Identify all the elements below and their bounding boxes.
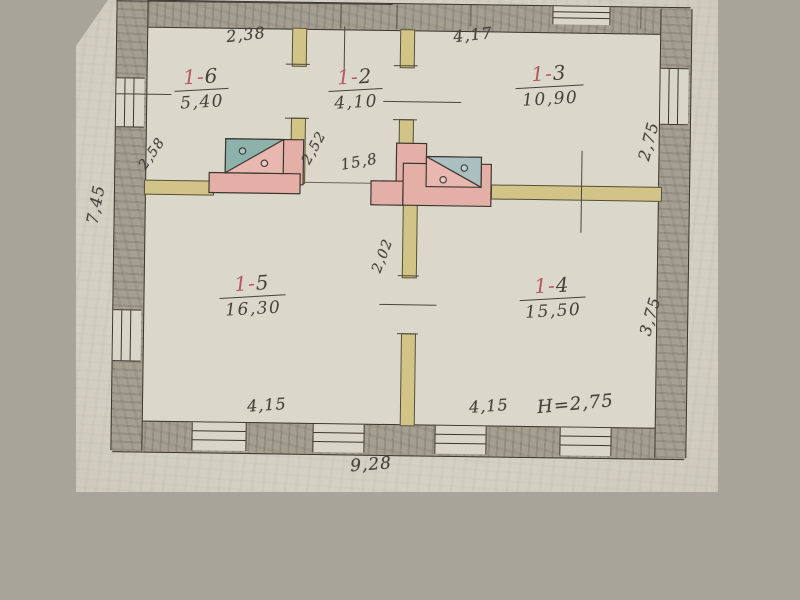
partition-central-upper: [402, 196, 418, 278]
dim-bottom-left: 4,15: [246, 394, 287, 416]
window-left-1: [116, 77, 145, 127]
window-bottom-3: [434, 426, 486, 455]
room-area: 4,10: [326, 91, 387, 114]
room-label-1-5: 1-5 16,30: [213, 269, 292, 321]
partition-central-lower: [400, 333, 416, 426]
room-area: 10,90: [512, 87, 589, 111]
window-bottom-4: [559, 427, 611, 456]
scanned-floor-plan: 1-6 5,40 1-2 4,10 1-3 10,90 1-5 16,30 1-…: [0, 0, 800, 600]
outer-wall-left: [110, 0, 148, 451]
partition-1-2-upper: [400, 29, 416, 68]
room-area: 5,40: [172, 91, 233, 114]
room-number: 1-2: [324, 63, 385, 90]
room-label-1-3: 1-3 10,90: [510, 59, 589, 111]
floor-plan: 1-6 5,40 1-2 4,10 1-3 10,90 1-5 16,30 1-…: [110, 0, 690, 459]
room-number: 1-6: [170, 63, 231, 90]
window-left-2: [113, 309, 142, 361]
stove-left: [208, 137, 308, 196]
stove-center: [369, 139, 494, 209]
partition-horizontal-left: [144, 180, 214, 196]
room-label-1-6: 1-6 5,40: [170, 63, 233, 114]
room-area: 15,50: [515, 299, 592, 323]
room-number: 1-5: [213, 269, 290, 297]
room-number: 1-4: [513, 271, 590, 299]
room-label-1-2: 1-2 4,10: [324, 63, 387, 114]
window-bottom-2: [312, 424, 364, 453]
dim-bottom-right: 4,15: [468, 395, 509, 417]
window-bottom-1: [191, 422, 246, 451]
window-top: [552, 6, 610, 25]
window-right: [660, 68, 689, 125]
room-area: 16,30: [215, 297, 292, 321]
room-number: 1-3: [510, 59, 587, 87]
room-label-1-4: 1-4 15,50: [513, 271, 592, 323]
partition-horizontal-right: [491, 184, 662, 201]
partition-1-6-upper: [292, 28, 308, 67]
dim-overall-width: 9,28: [349, 453, 392, 476]
